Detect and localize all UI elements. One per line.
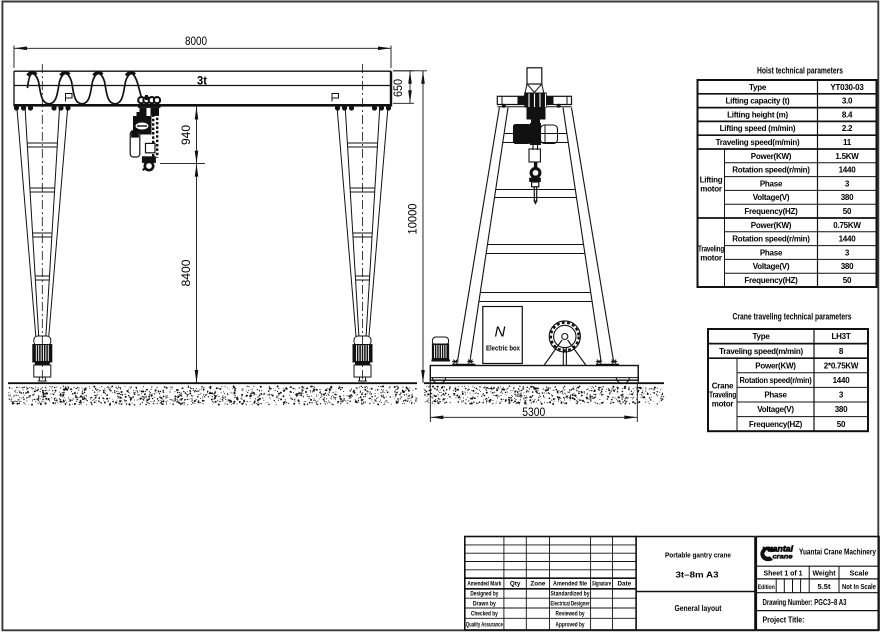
- svg-text:Electric box: Electric box: [486, 344, 520, 353]
- svg-text:Hoist technical parameters: Hoist technical parameters: [757, 66, 843, 76]
- svg-text:Date: Date: [617, 581, 631, 588]
- svg-text:Traveling: Traveling: [698, 245, 724, 254]
- svg-text:5.5t: 5.5t: [818, 582, 831, 591]
- svg-text:11: 11: [843, 138, 852, 147]
- svg-text:5300: 5300: [522, 405, 545, 419]
- svg-text:Voltage(V): Voltage(V): [753, 193, 790, 202]
- svg-text:Voltage(V): Voltage(V): [757, 405, 794, 414]
- svg-text:2.2: 2.2: [842, 124, 853, 133]
- svg-text:650: 650: [391, 79, 405, 97]
- svg-text:motor: motor: [700, 254, 722, 263]
- svg-text:Type: Type: [752, 332, 770, 341]
- svg-text:Amended file: Amended file: [553, 581, 587, 588]
- svg-text:8400: 8400: [179, 259, 193, 286]
- svg-text:8.4: 8.4: [842, 110, 853, 119]
- svg-text:Checked by: Checked by: [471, 610, 498, 617]
- svg-text:Traveling speed(m/min): Traveling speed(m/min): [719, 347, 803, 356]
- svg-text:Lifting capacity (t): Lifting capacity (t): [726, 97, 790, 106]
- svg-text:940: 940: [179, 125, 193, 145]
- svg-text:Standardized by: Standardized by: [551, 591, 590, 598]
- svg-text:Not In Scale: Not In Scale: [842, 584, 876, 591]
- svg-text:Project Title:: Project Title:: [763, 616, 805, 625]
- svg-text:Traveling speed(m/min): Traveling speed(m/min): [716, 138, 800, 147]
- svg-text:Phase: Phase: [760, 248, 783, 257]
- svg-text:Approved by: Approved by: [556, 621, 585, 628]
- svg-text:10000: 10000: [406, 203, 420, 234]
- svg-text:Frequency(HZ): Frequency(HZ): [744, 276, 798, 285]
- svg-text:motor: motor: [712, 400, 734, 409]
- svg-text:N: N: [495, 324, 506, 341]
- svg-text:0.75KW: 0.75KW: [833, 221, 861, 230]
- svg-text:Scale: Scale: [850, 569, 869, 578]
- svg-text:Lifting height (m): Lifting height (m): [727, 110, 788, 119]
- svg-text:Rotation speed(r/min): Rotation speed(r/min): [740, 376, 813, 385]
- svg-text:crane: crane: [773, 554, 794, 561]
- svg-text:Sheet 1 of 1: Sheet 1 of 1: [764, 569, 803, 578]
- svg-text:Portable gantry crane: Portable gantry crane: [665, 551, 731, 560]
- svg-text:Voltage(V): Voltage(V): [753, 262, 790, 271]
- svg-text:1440: 1440: [839, 235, 857, 244]
- svg-text:YT030-03: YT030-03: [830, 83, 864, 92]
- svg-text:50: 50: [837, 420, 846, 429]
- svg-text:Reviewed by: Reviewed by: [556, 610, 585, 617]
- svg-text:380: 380: [841, 262, 854, 271]
- svg-text:Phase: Phase: [764, 391, 787, 400]
- svg-text:Power(KW): Power(KW): [755, 361, 796, 370]
- svg-text:380: 380: [835, 405, 848, 414]
- svg-text:8000: 8000: [185, 34, 207, 48]
- svg-text:Amended Mark: Amended Mark: [467, 581, 501, 588]
- svg-text:Quality Assurance: Quality Assurance: [466, 621, 503, 628]
- svg-text:50: 50: [843, 276, 852, 285]
- svg-text:Zone: Zone: [530, 581, 546, 588]
- svg-text:50: 50: [843, 207, 852, 216]
- svg-text:Edition: Edition: [758, 584, 775, 591]
- svg-text:Rotation speed(r/min): Rotation speed(r/min): [732, 235, 810, 244]
- svg-text:2*0.75KW: 2*0.75KW: [824, 361, 859, 370]
- svg-text:General layout: General layout: [675, 604, 722, 613]
- svg-text:3.0: 3.0: [842, 97, 853, 106]
- svg-text:Signature: Signature: [592, 581, 611, 588]
- svg-text:Designed by: Designed by: [470, 591, 498, 598]
- svg-text:Power(KW): Power(KW): [751, 152, 792, 161]
- svg-text:Lifting speed (m/min): Lifting speed (m/min): [720, 124, 796, 133]
- svg-text:Qty: Qty: [510, 581, 521, 588]
- svg-text:Drawn by: Drawn by: [473, 600, 496, 607]
- svg-text:1.5KW: 1.5KW: [835, 152, 859, 161]
- svg-text:Traveling: Traveling: [709, 391, 736, 400]
- svg-text:Phase: Phase: [760, 179, 783, 188]
- svg-text:3t–8m A3: 3t–8m A3: [676, 571, 720, 580]
- svg-text:Crane traveling technical p: Crane traveling technical parameters: [733, 312, 852, 322]
- svg-text:1440: 1440: [833, 376, 851, 385]
- svg-text:1440: 1440: [839, 166, 857, 175]
- svg-text:Weight: Weight: [813, 569, 836, 578]
- svg-text:Power(KW): Power(KW): [751, 221, 792, 230]
- svg-text:Lifting: Lifting: [700, 176, 723, 185]
- svg-text:Type: Type: [749, 83, 767, 92]
- svg-text:Frequency(HZ): Frequency(HZ): [744, 207, 798, 216]
- svg-text:LH3T: LH3T: [832, 332, 851, 341]
- svg-text:Electrical Designer: Electrical Designer: [551, 600, 590, 607]
- svg-text:380: 380: [841, 193, 854, 202]
- svg-text:motor: motor: [700, 185, 722, 194]
- svg-text:Yuantai Crane Machinery: Yuantai Crane Machinery: [799, 548, 877, 557]
- svg-text:Drawing Number: PGC3–8 A3: Drawing Number: PGC3–8 A3: [763, 598, 848, 607]
- svg-text:yuantai: yuantai: [761, 545, 793, 554]
- svg-text:Crane: Crane: [712, 382, 734, 391]
- svg-text:Rotation speed(r/min): Rotation speed(r/min): [732, 166, 810, 175]
- svg-text:3t: 3t: [197, 76, 207, 88]
- svg-text:Frequency(HZ): Frequency(HZ): [749, 420, 803, 429]
